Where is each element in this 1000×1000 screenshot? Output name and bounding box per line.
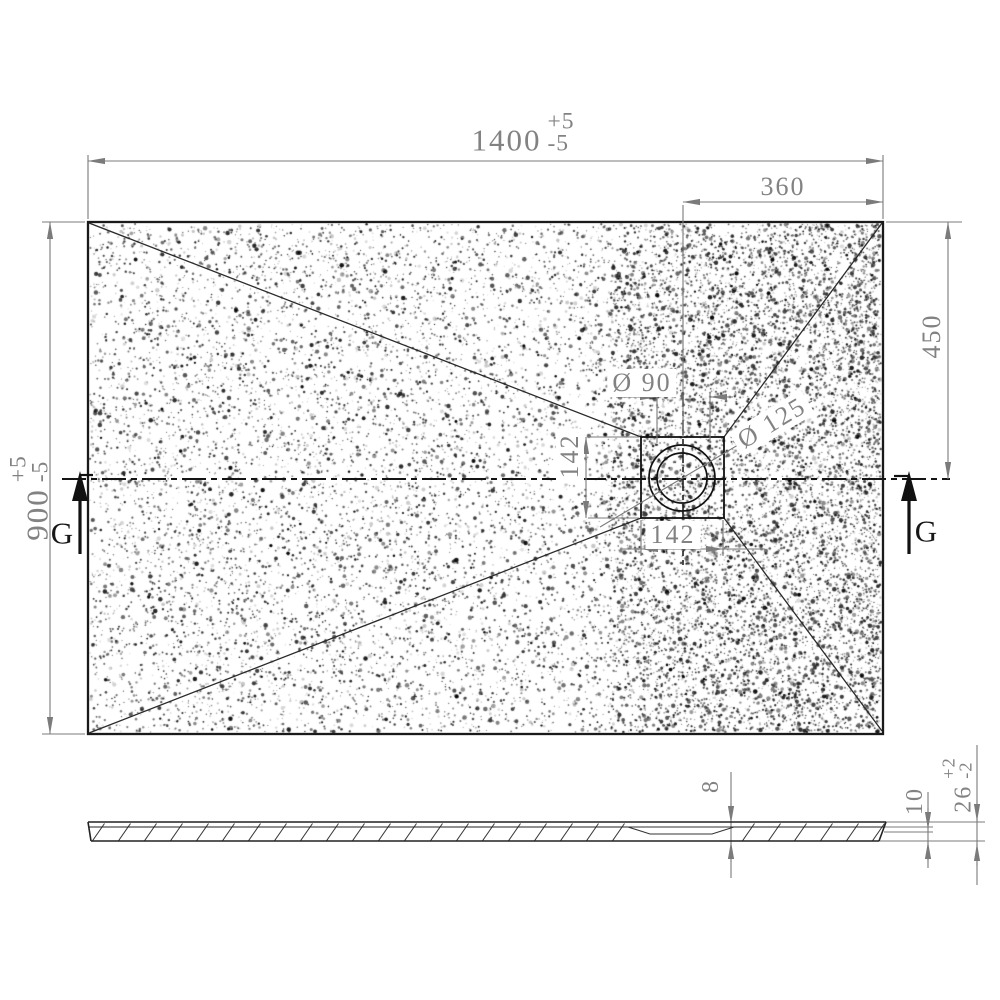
dim-length: 1400 +5 -5	[471, 111, 574, 156]
tray-outline	[88, 222, 883, 734]
slope-diagonals	[89, 223, 882, 733]
dim-thickness-drain: 8	[699, 779, 723, 793]
dimension-lines	[42, 155, 985, 885]
dim-drain-offset-y: 450	[919, 314, 945, 359]
dim-drain-offset-x: 360	[761, 174, 806, 200]
dim-waste-hole-dia: Ø 90	[607, 369, 676, 397]
dim-width-value: 900	[21, 488, 52, 541]
dim-width-tolerance: +5 -5	[8, 455, 53, 482]
section-mark-left: G	[51, 518, 73, 549]
dim-edge-height-value: 26	[951, 785, 975, 813]
dim-recess-height: 142	[556, 429, 584, 484]
dim-recess-width: 142	[646, 521, 701, 549]
dim-thickness-edge: 10	[903, 787, 927, 815]
section-mark-right: G	[915, 516, 937, 547]
dim-length-value: 1400	[471, 124, 541, 155]
dim-edge-height-tolerance: +2 -2	[941, 757, 976, 778]
dim-length-tolerance: +5 -5	[547, 111, 574, 156]
dim-edge-height: 26 +2 -2	[941, 757, 976, 812]
centerlines	[62, 392, 950, 565]
g-arrow-left	[72, 471, 93, 554]
g-arrow-right	[894, 471, 917, 554]
hatch-lines	[66, 824, 911, 842]
recess-profile	[628, 827, 734, 834]
dim-width: 900 +5 -5	[8, 455, 53, 541]
technical-drawing: 1400 +5 -5 900 +5 -5 360 450 142 142 Ø 9…	[0, 0, 1000, 1000]
